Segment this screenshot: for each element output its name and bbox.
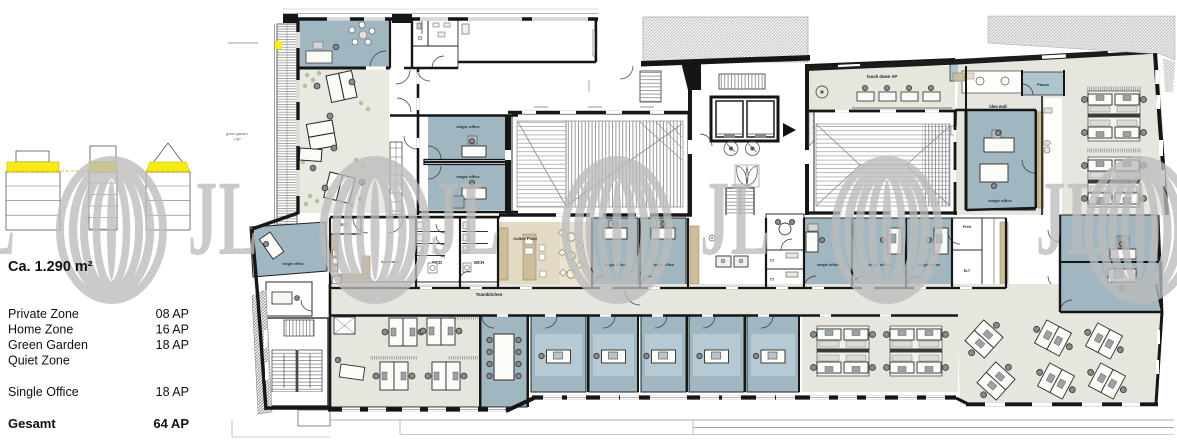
svg-text:Gesamt: Gesamt: [8, 416, 56, 431]
svg-text:Home Zone: Home Zone: [8, 323, 73, 337]
svg-text:Quiet Zone: Quiet Zone: [8, 354, 70, 368]
svg-text:green garden: green garden: [226, 132, 247, 136]
svg-text:Pausa: Pausa: [1037, 82, 1050, 87]
svg-text:Coffee Point: Coffee Point: [513, 236, 537, 241]
svg-text:touch down AP: touch down AP: [867, 74, 898, 79]
svg-text:64 AP: 64 AP: [153, 416, 189, 431]
svg-text:single office: single office: [283, 262, 304, 266]
svg-text:idea wall: idea wall: [989, 104, 1006, 109]
svg-text:Teamkitchen: Teamkitchen: [476, 292, 503, 297]
svg-text:08 AP: 08 AP: [156, 307, 189, 321]
svg-text:16 AP: 16 AP: [156, 323, 189, 337]
svg-text:JL: JL: [430, 159, 501, 278]
svg-text:single office: single office: [456, 124, 480, 129]
svg-text:Single Office: Single Office: [8, 385, 79, 399]
svg-text:Print: Print: [963, 225, 972, 229]
svg-text:7 AP: 7 AP: [233, 138, 241, 142]
svg-text:Ca. 1.290 m²: Ca. 1.290 m²: [8, 259, 93, 275]
svg-text:single office: single office: [817, 263, 839, 267]
svg-text:JL: JL: [188, 159, 259, 278]
svg-text:single office: single office: [988, 198, 1012, 203]
svg-text:JL: JL: [700, 159, 771, 278]
svg-text:Private Zone: Private Zone: [8, 307, 79, 321]
svg-text:18 AP: 18 AP: [156, 338, 189, 352]
svg-text:ELT: ELT: [964, 269, 971, 273]
svg-text:Green Garden: Green Garden: [8, 338, 88, 352]
svg-text:18 AP: 18 AP: [156, 385, 189, 399]
